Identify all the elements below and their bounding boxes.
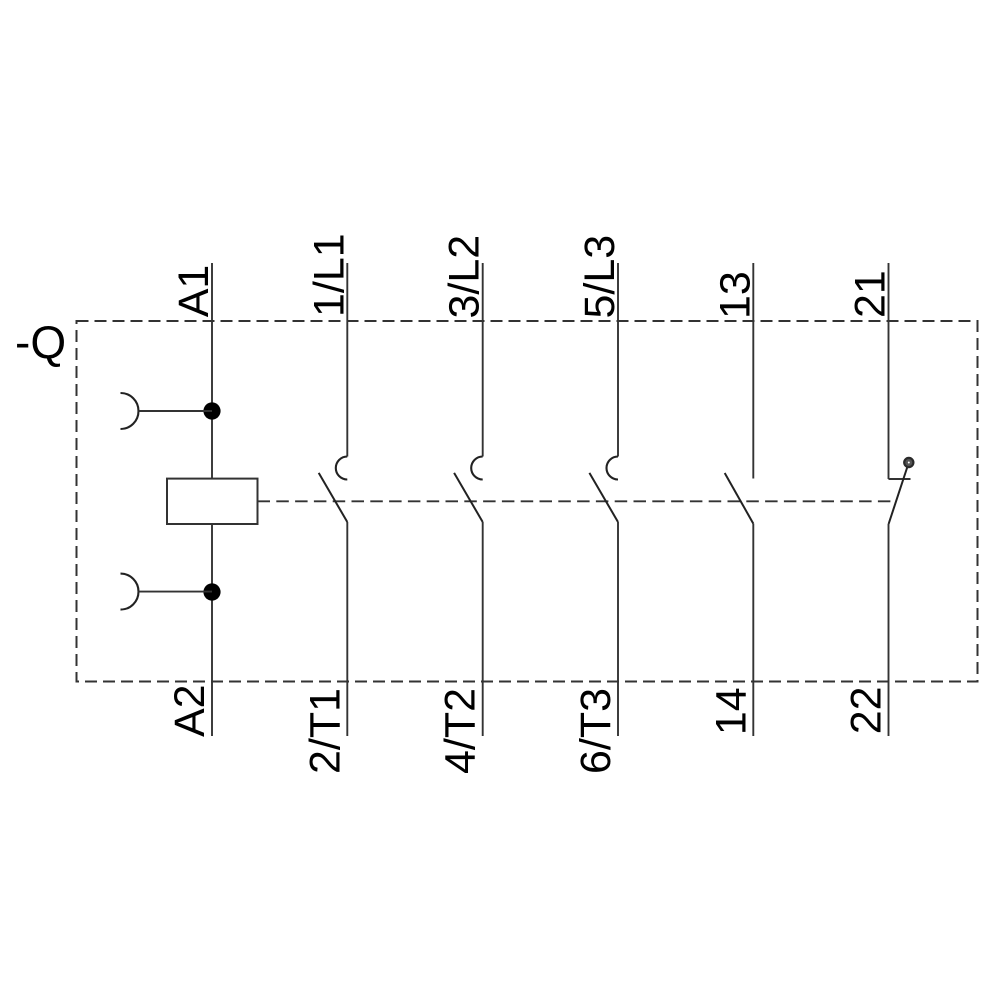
svg-text:-Q: -Q <box>15 316 66 368</box>
svg-text:13: 13 <box>711 271 759 319</box>
svg-text:21: 21 <box>847 270 895 318</box>
svg-text:2/T1: 2/T1 <box>301 688 349 774</box>
svg-text:A2: A2 <box>166 684 214 737</box>
svg-text:14: 14 <box>707 687 755 735</box>
svg-text:4/T2: 4/T2 <box>437 688 485 774</box>
svg-text:22: 22 <box>843 686 891 734</box>
svg-text:6/T3: 6/T3 <box>572 688 620 774</box>
svg-text:1/L1: 1/L1 <box>305 233 353 317</box>
svg-text:5/L3: 5/L3 <box>576 235 624 319</box>
svg-text:A1: A1 <box>170 265 218 318</box>
svg-text:3/L2: 3/L2 <box>441 235 489 319</box>
